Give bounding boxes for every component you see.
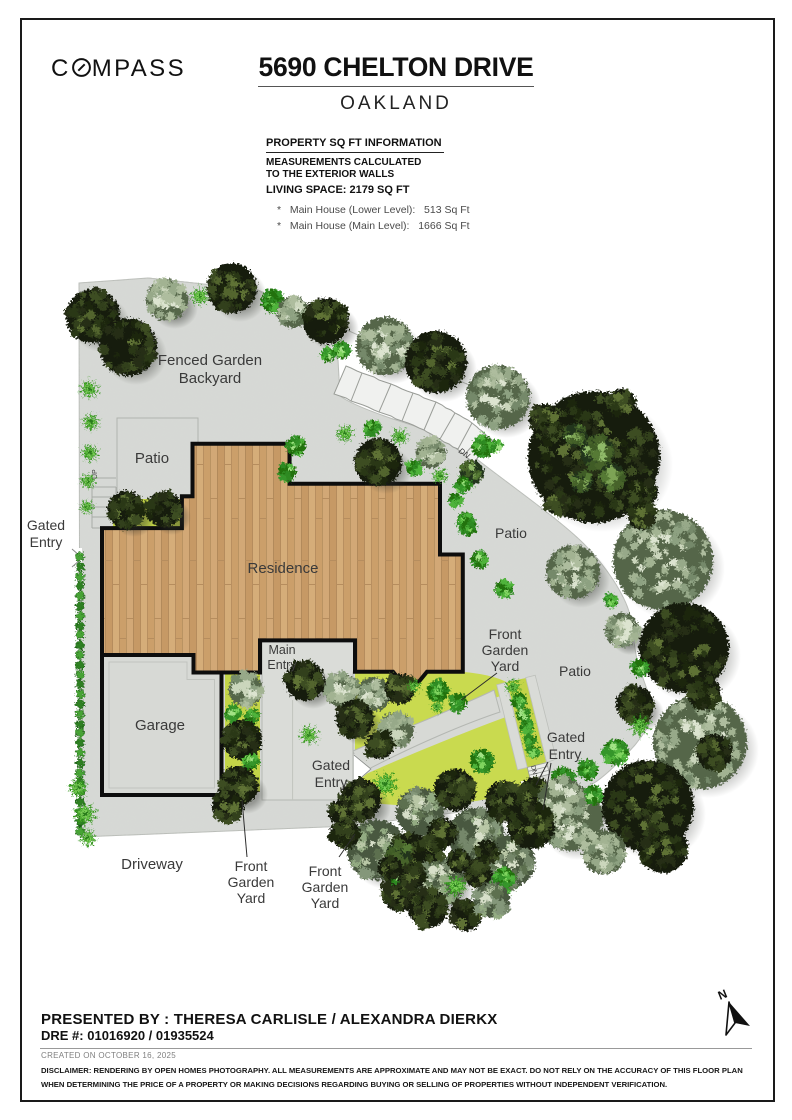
svg-text:Patio: Patio	[135, 450, 169, 467]
svg-text:Yard: Yard	[491, 658, 520, 674]
svg-text:Gated: Gated	[547, 729, 585, 745]
svg-text:Patio: Patio	[559, 663, 591, 679]
svg-text:Entry: Entry	[549, 746, 582, 762]
svg-text:Backyard: Backyard	[179, 370, 242, 387]
svg-text:Front: Front	[235, 858, 268, 874]
svg-text:Gated: Gated	[312, 757, 350, 773]
svg-text:Residence: Residence	[248, 560, 319, 577]
svg-text:Garden: Garden	[302, 879, 349, 895]
svg-text:Front: Front	[489, 626, 522, 642]
svg-text:Yard: Yard	[237, 890, 266, 906]
svg-text:Entry: Entry	[315, 774, 348, 790]
svg-text:Entry: Entry	[267, 658, 297, 672]
svg-text:Main: Main	[268, 643, 295, 657]
svg-text:Front: Front	[309, 863, 342, 879]
svg-text:Gated: Gated	[27, 517, 65, 533]
svg-text:Entry: Entry	[30, 534, 63, 550]
svg-text:Garden: Garden	[228, 874, 275, 890]
svg-text:Patio: Patio	[495, 525, 527, 541]
svg-text:Garden: Garden	[482, 642, 529, 658]
svg-text:Garage: Garage	[135, 717, 185, 734]
svg-text:Fenced Garden: Fenced Garden	[158, 352, 262, 369]
svg-text:Yard: Yard	[311, 895, 340, 911]
svg-text:N: N	[716, 987, 729, 1003]
svg-text:Driveway: Driveway	[121, 856, 183, 873]
